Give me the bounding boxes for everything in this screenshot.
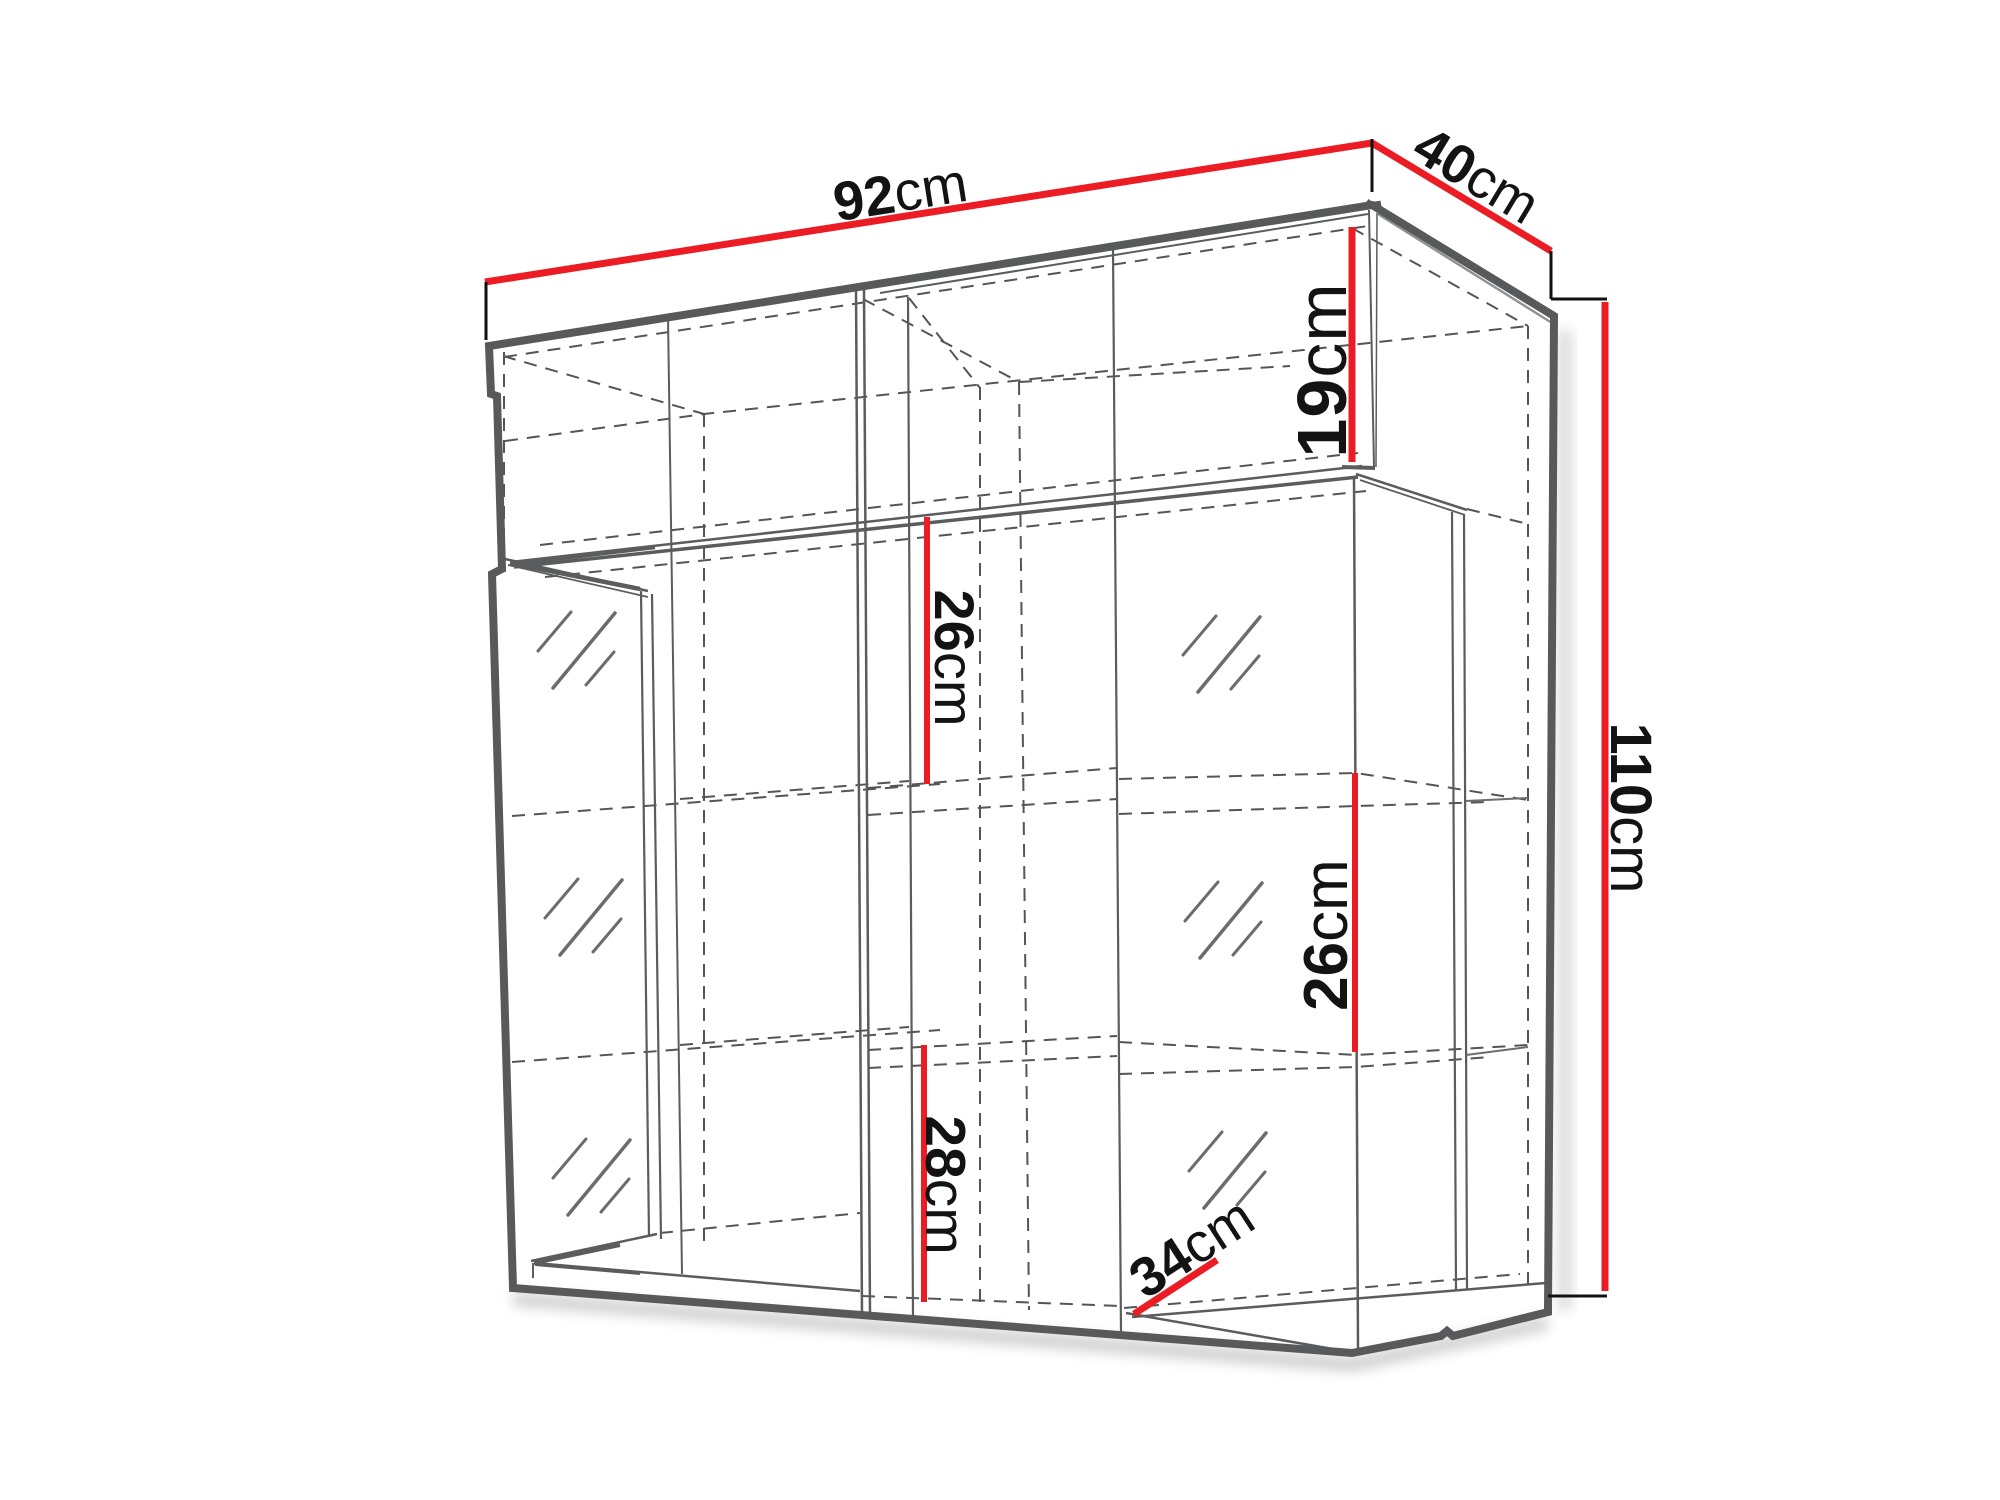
svg-text:19cm: 19cm (1283, 282, 1361, 457)
svg-text:92cm: 92cm (829, 151, 972, 233)
svg-text:110cm: 110cm (1598, 723, 1663, 894)
svg-text:28cm: 28cm (913, 1115, 977, 1254)
svg-text:26cm: 26cm (1292, 859, 1361, 1011)
svg-text:40cm: 40cm (1403, 114, 1550, 236)
svg-text:26cm: 26cm (923, 590, 986, 727)
svg-text:34cm: 34cm (1118, 1185, 1265, 1310)
